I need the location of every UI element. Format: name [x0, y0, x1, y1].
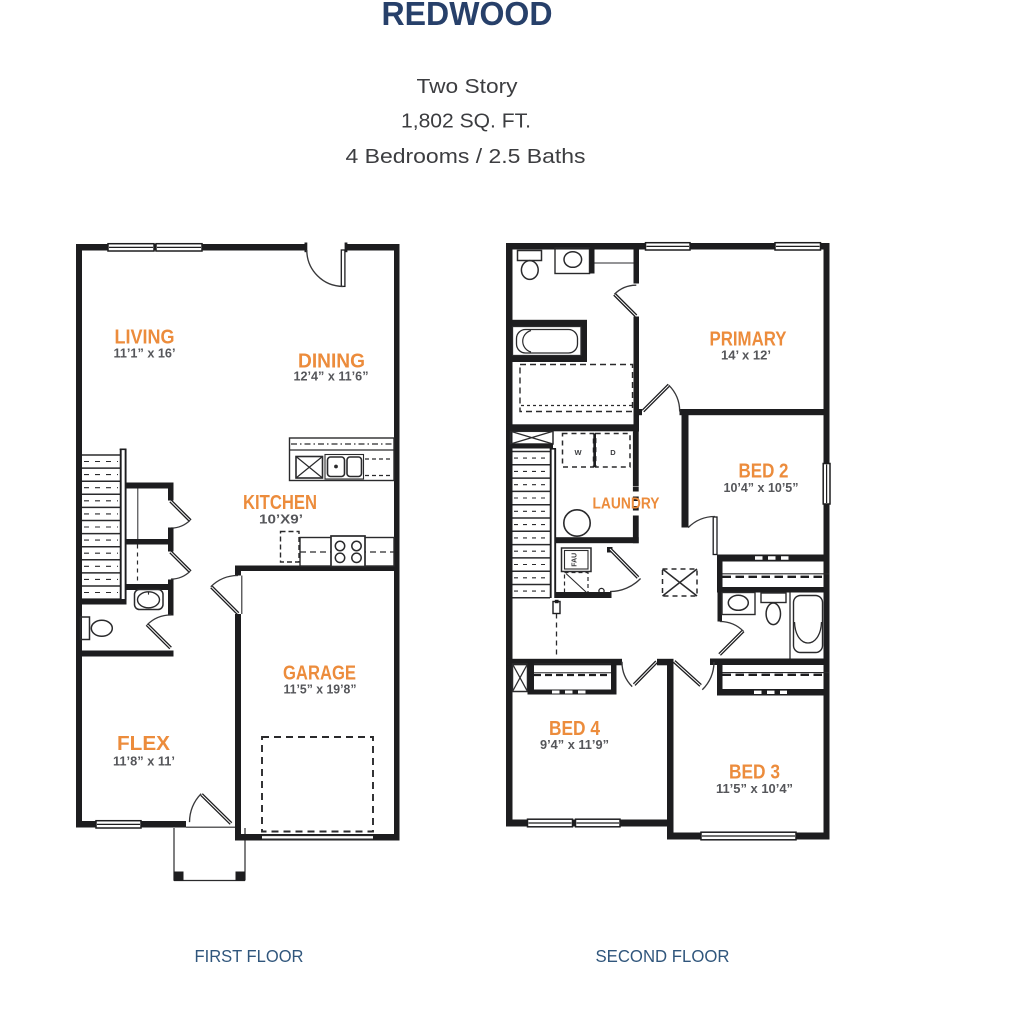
svg-text:REDWOOD: REDWOOD [382, 0, 553, 33]
svg-text:11’5” x 19’8”: 11’5” x 19’8” [284, 683, 357, 697]
svg-text:12’4” x 11’6”: 12’4” x 11’6” [294, 370, 369, 384]
svg-text:Two Story: Two Story [417, 75, 519, 98]
svg-text:10’4” x 10’5”: 10’4” x 10’5” [724, 481, 799, 495]
svg-text:LAUNDRY: LAUNDRY [593, 496, 660, 513]
svg-text:FAU: FAU [572, 553, 579, 567]
svg-text:BED 3: BED 3 [729, 762, 780, 784]
svg-text:FIRST FLOOR: FIRST FLOOR [195, 946, 304, 966]
svg-text:1,802 SQ. FT.: 1,802 SQ. FT. [401, 110, 531, 133]
svg-text:SECOND FLOOR: SECOND FLOOR [596, 946, 730, 966]
svg-text:11’5” x 10’4”: 11’5” x 10’4” [716, 782, 793, 796]
svg-text:PRIMARY: PRIMARY [710, 329, 788, 351]
svg-text:W: W [574, 448, 582, 457]
svg-text:4 Bedrooms / 2.5 Baths: 4 Bedrooms / 2.5 Baths [346, 145, 586, 168]
svg-text:FLEX: FLEX [117, 733, 171, 755]
svg-text:9’4” x 11’9”: 9’4” x 11’9” [540, 738, 609, 752]
svg-text:LIVING: LIVING [115, 327, 175, 349]
svg-text:11’8” x 11’: 11’8” x 11’ [113, 755, 175, 769]
svg-text:KITCHEN: KITCHEN [243, 492, 317, 514]
svg-text:BED 2: BED 2 [739, 461, 789, 483]
svg-text:GARAGE: GARAGE [283, 663, 356, 685]
svg-text:BED 4: BED 4 [549, 718, 601, 740]
svg-text:10’X9’: 10’X9’ [259, 513, 303, 527]
svg-text:14’ x 12’: 14’ x 12’ [721, 349, 771, 363]
svg-text:11’1” x 16’: 11’1” x 16’ [114, 347, 176, 361]
svg-text:D: D [610, 448, 616, 457]
